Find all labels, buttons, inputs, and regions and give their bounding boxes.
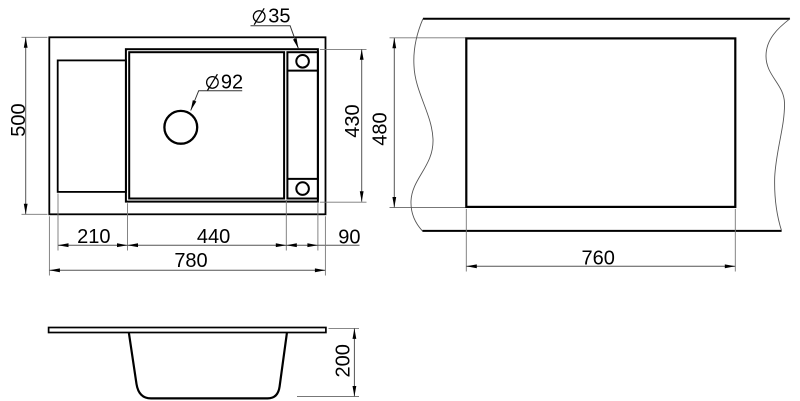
svg-text:440: 440 (197, 226, 230, 248)
svg-text:760: 760 (582, 247, 615, 269)
svg-text:90: 90 (338, 226, 360, 248)
svg-text:200: 200 (332, 344, 354, 377)
svg-text:500: 500 (8, 103, 30, 136)
svg-text:780: 780 (174, 250, 207, 272)
svg-text:210: 210 (77, 226, 110, 248)
svg-text:430: 430 (342, 104, 364, 137)
svg-text:35: 35 (268, 6, 290, 28)
svg-text:480: 480 (369, 112, 391, 145)
svg-text:92: 92 (221, 71, 243, 93)
